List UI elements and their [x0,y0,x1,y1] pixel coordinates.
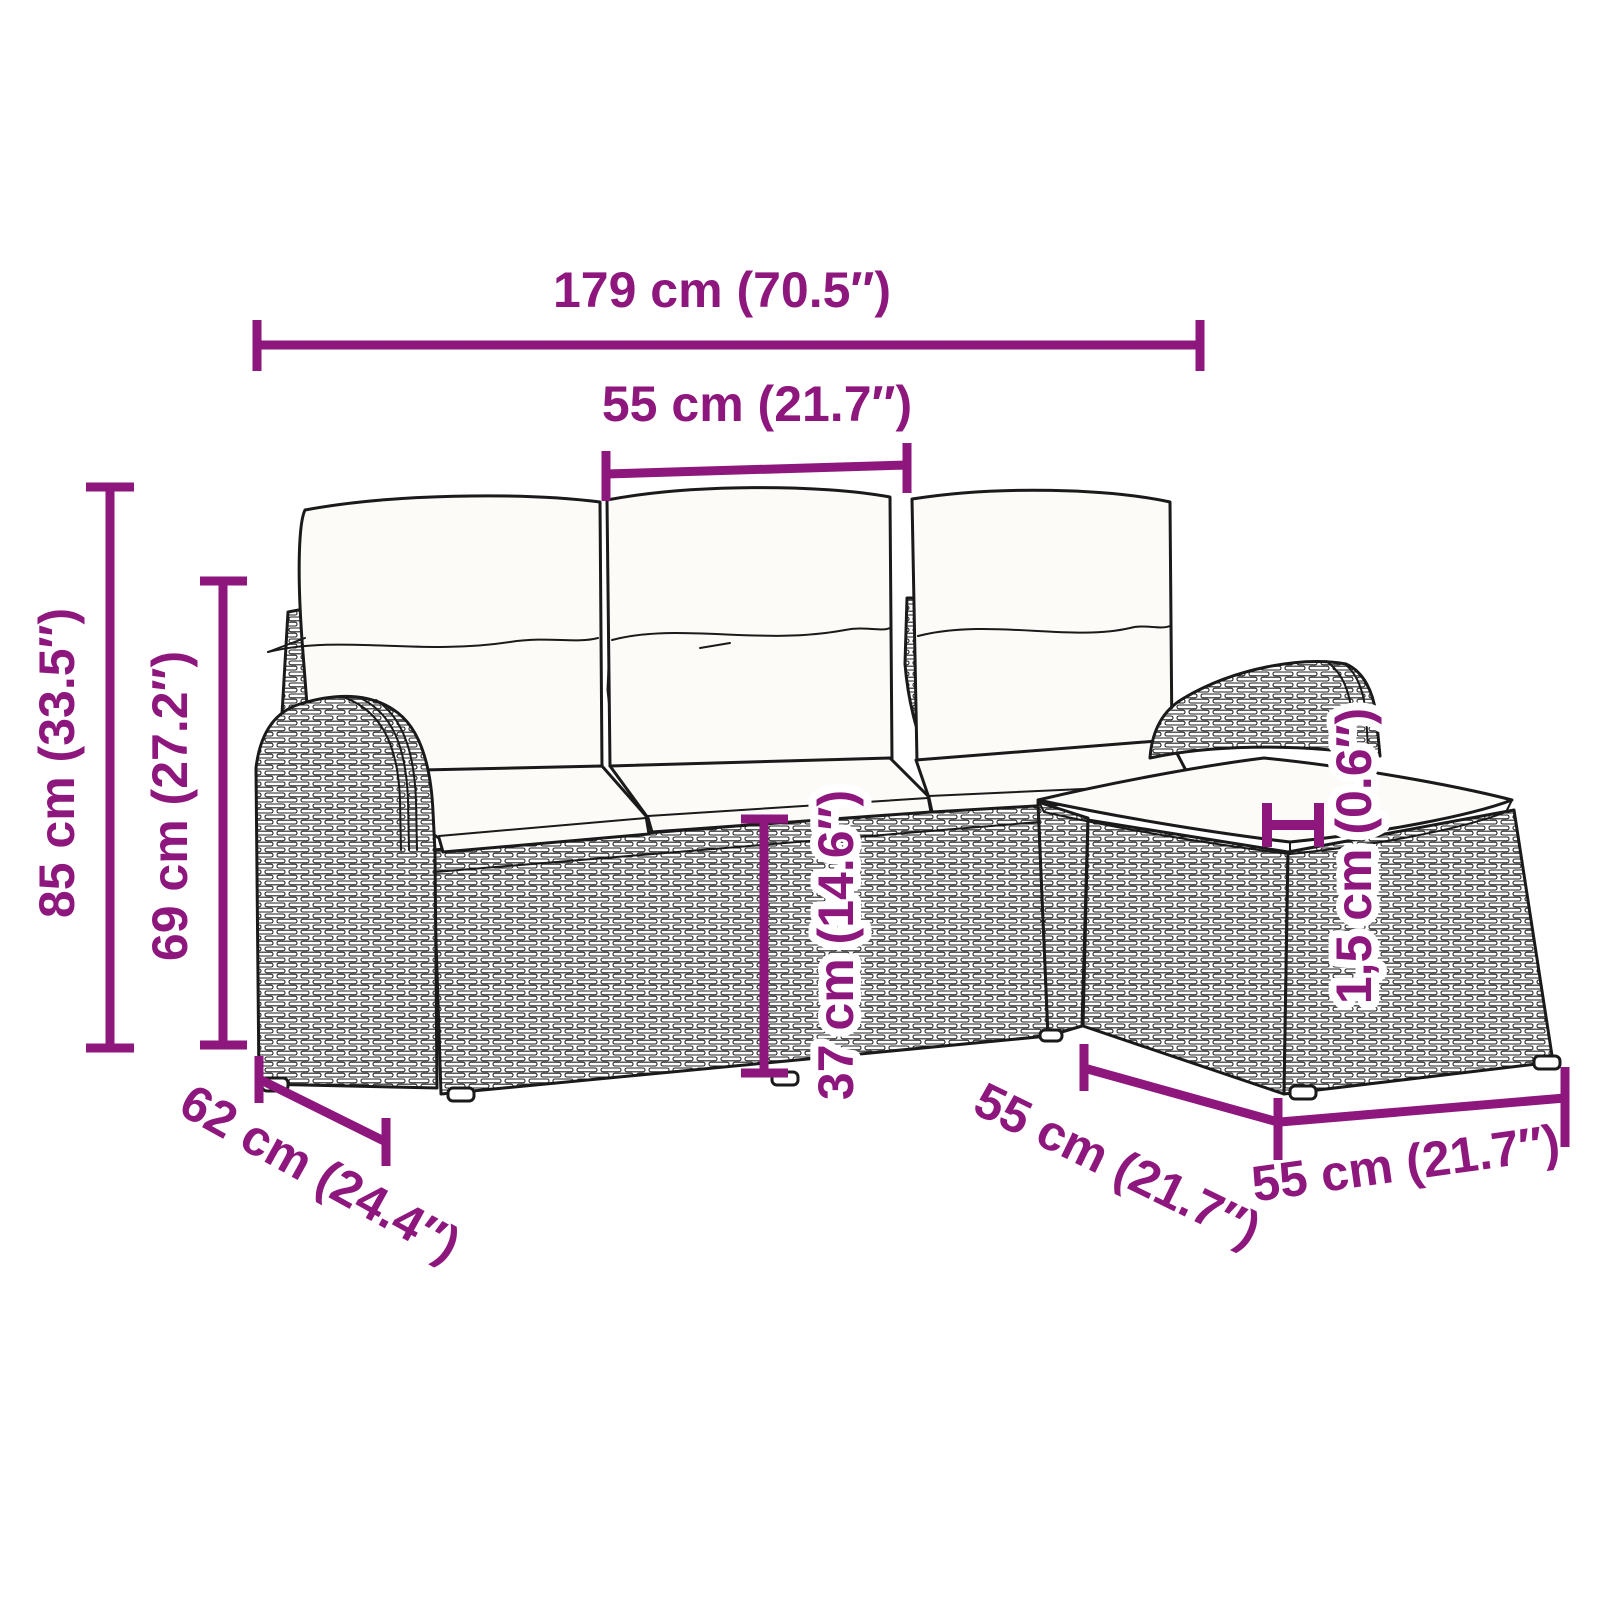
dim-overall-width-line [257,320,1200,371]
dim-backrest-height-line [200,581,247,1045]
overall-height-label: 85 cm (33.5″) [29,608,85,918]
footstool-left-face [1083,820,1288,1094]
backrest-height-label: 69 cm (27.2″) [142,651,198,961]
sofa-side-face [1038,802,1088,1036]
footstool-right-face [1284,810,1553,1094]
left-armrest [256,696,437,1088]
seat-module-width-label: 55 cm (21.7″) [602,376,912,432]
stool-side-width-label: 55 cm (21.7″) [1248,1114,1563,1213]
back-cushion-2 [607,488,892,770]
dimension-diagram: 179 cm (70.5″) 55 cm (21.7″) 85 cm (33.5… [0,0,1600,1600]
seat-height-label: 37 cm (14.6″) [808,790,864,1100]
back-cushion-3 [912,490,1172,764]
overall-width-label: 179 cm (70.5″) [553,262,891,318]
dim-overall-height-line [86,487,134,1048]
stool-front-width-label: 55 cm (21.7″) [966,1072,1269,1258]
footstool [1038,758,1553,1094]
cushion-thickness-label: 1,5 cm (0.6″) [1326,708,1382,1004]
seat-depth-label: 62 cm (24.4″) [171,1073,469,1272]
